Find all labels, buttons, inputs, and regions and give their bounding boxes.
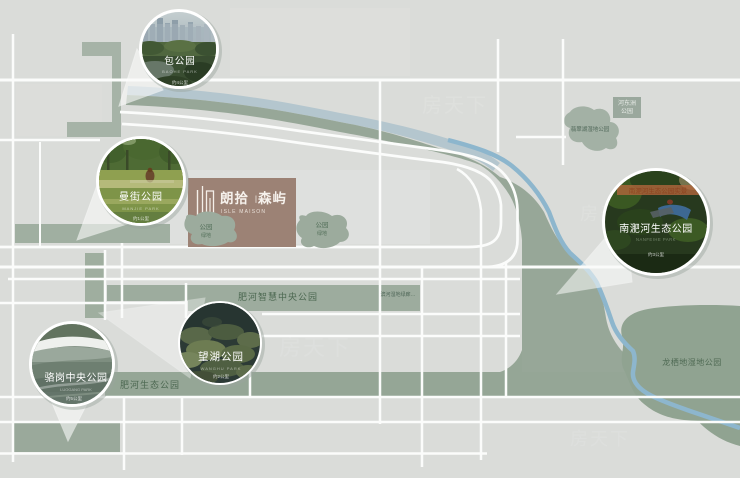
svg-text:约5公里: 约5公里 [66, 395, 83, 402]
svg-text:骆岗中央公园: 骆岗中央公园 [45, 371, 108, 384]
svg-text:翡翠湖湿地公园: 翡翠湖湿地公园 [571, 125, 610, 133]
svg-text:曼街公园: 曼街公园 [119, 190, 163, 203]
svg-text:包公园: 包公园 [164, 55, 196, 67]
svg-text:肥河生态公园: 肥河生态公园 [120, 379, 180, 390]
svg-text:绿地: 绿地 [201, 232, 211, 239]
svg-text:绿地: 绿地 [317, 230, 327, 237]
svg-text:南淝河生态公园: 南淝河生态公园 [619, 222, 693, 235]
svg-text:约3公里: 约3公里 [648, 251, 665, 258]
svg-text:LUOGANG PARK: LUOGANG PARK [60, 387, 92, 392]
svg-text:房天下: 房天下 [422, 94, 488, 117]
svg-text:BAOHE PARK: BAOHE PARK [162, 69, 198, 74]
svg-text:森屿: 森屿 [258, 190, 287, 206]
svg-text:龙栖地湿地公园: 龙栖地湿地公园 [662, 357, 722, 367]
svg-text:河东洲: 河东洲 [618, 99, 636, 107]
svg-text:肥河智慧中央公园: 肥河智慧中央公园 [238, 291, 318, 302]
svg-text:房天下: 房天下 [279, 335, 351, 360]
svg-text:NANFEIHE PARK: NANFEIHE PARK [636, 237, 676, 242]
svg-text:ISLE MAISON: ISLE MAISON [221, 209, 266, 215]
svg-text:公园: 公园 [621, 108, 633, 115]
svg-text:约2公里: 约2公里 [213, 373, 230, 380]
svg-text:公园: 公园 [316, 221, 329, 229]
svg-text:南淝河生态公园实景: 南淝河生态公园实景 [629, 186, 688, 195]
svg-text:公园: 公园 [200, 223, 213, 231]
svg-text:约1公里: 约1公里 [133, 215, 150, 222]
svg-text:房天下: 房天下 [570, 429, 630, 449]
svg-text:朗拾: 朗拾 [220, 190, 249, 206]
svg-text:望湖公园: 望湖公园 [198, 350, 244, 363]
svg-text:滨河湿地绿廊…: 滨河湿地绿廊… [380, 291, 415, 298]
svg-text:MANJIE PARK: MANJIE PARK [122, 206, 159, 211]
svg-text:约4公里: 约4公里 [172, 79, 189, 86]
svg-text:WANGHU PARK: WANGHU PARK [201, 366, 242, 371]
